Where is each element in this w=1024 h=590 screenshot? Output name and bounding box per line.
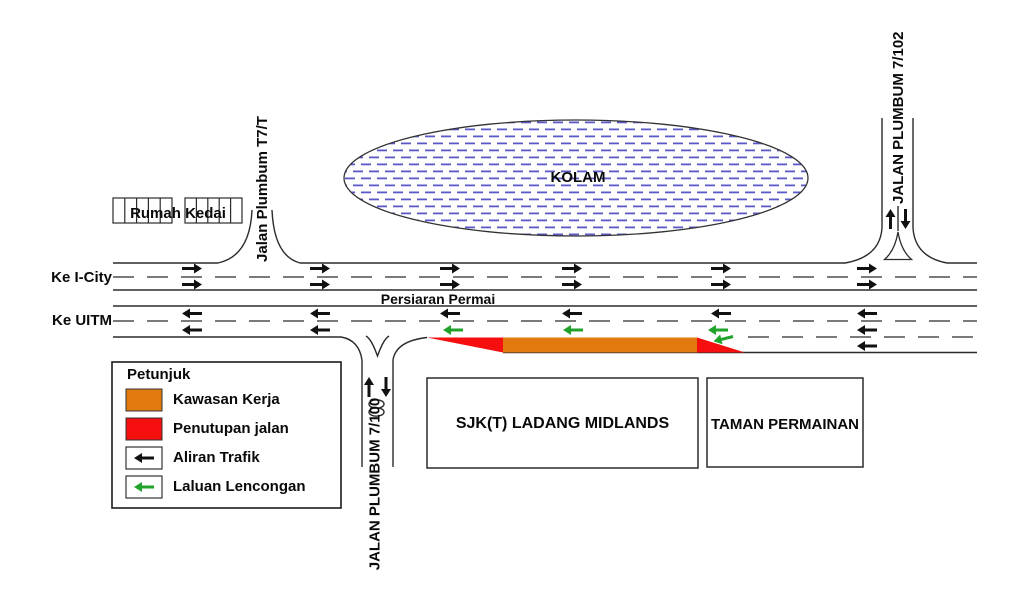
legend-closure-swatch xyxy=(126,418,162,440)
road-north-left-label: Jalan Plumbum T7/T xyxy=(254,104,272,274)
traffic-diversion-map: Ke I-City Ke UITM Persiaran Permai KOLAM… xyxy=(0,0,1024,590)
legend-title: Petunjuk xyxy=(127,366,190,383)
legend-item-diversion-label: Laluan Lencongan xyxy=(173,478,306,495)
legend-item-traffic-label: Aliran Trafik xyxy=(173,449,260,466)
main-road-label: Persiaran Permai xyxy=(368,291,508,307)
playground-label: TAMAN PERMAINAN xyxy=(707,416,863,433)
legend-work-area-swatch xyxy=(126,389,162,411)
legend-item-closure-label: Penutupan jalan xyxy=(173,420,289,437)
road-south-label: JALAN PLUMBUM 7/100 xyxy=(367,397,385,572)
legend-item-work-area-label: Kawasan Kerja xyxy=(173,391,280,408)
map-graphics xyxy=(0,0,1024,590)
school-building-label: SJK(T) LADANG MIDLANDS xyxy=(427,415,698,433)
dest-east-label: Ke I-City xyxy=(44,269,112,286)
pond-label: KOLAM xyxy=(528,169,628,186)
dest-west-label: Ke UITM xyxy=(44,312,112,329)
work-area-rect xyxy=(503,338,697,353)
road-north-right-label: JALAN PLUMBUM 7/102 xyxy=(890,34,908,204)
shophouses-label: Rumah Kedai xyxy=(108,205,248,222)
